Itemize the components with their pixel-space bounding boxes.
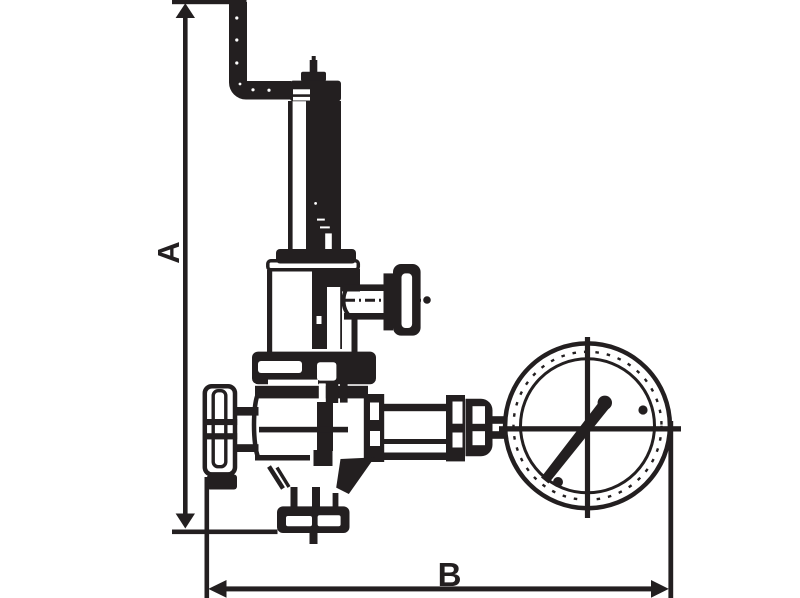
- svg-text:B: B: [438, 556, 462, 593]
- svg-text:A: A: [151, 241, 186, 263]
